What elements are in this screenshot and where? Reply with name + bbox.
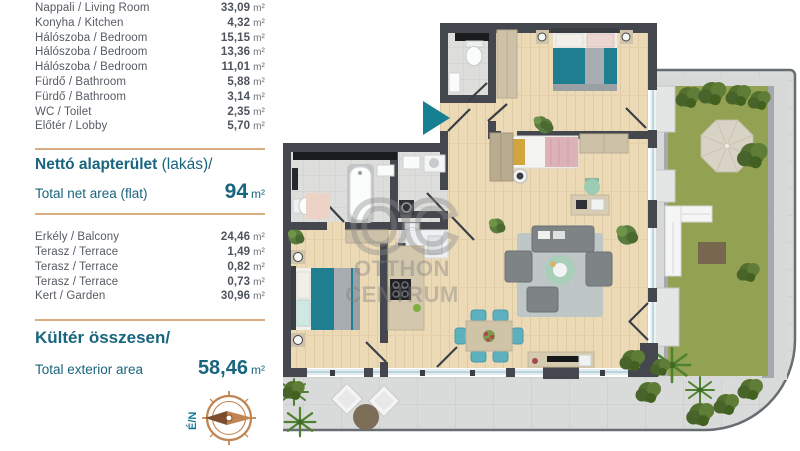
apartment: OC OTTHON CENTRUM: [283, 23, 658, 379]
divider: [35, 148, 265, 150]
exterior-total-row: Total exterior area 58,46m²: [35, 357, 265, 380]
table-row: Hálószoba / Bedroom13,36m²: [35, 46, 265, 61]
shower-room-window: [455, 33, 489, 41]
table-row: Terasz / Terrace0,73m²: [35, 276, 265, 291]
table-row: Erkély / Balcony24,46m²: [35, 231, 265, 246]
net-area-row: Total net area (flat) 94m²: [35, 180, 265, 204]
sink-icon: [449, 73, 460, 92]
garden-table: [698, 242, 726, 264]
balcony-table-icon: [353, 404, 379, 430]
pillow: [512, 139, 525, 165]
chair-icon: [584, 179, 600, 195]
sink-icon: [403, 156, 420, 169]
compass-label: É/N: [186, 412, 199, 430]
table-row: Hálószoba / Bedroom11,01m²: [35, 61, 265, 76]
floorplan-render: OC OTTHON CENTRUM: [283, 0, 800, 451]
table-row: Konyha / Kitchen4,32m²: [35, 17, 265, 32]
net-area-title: Nettó alapterület (lakás)/: [35, 156, 265, 174]
table-row: Fürdő / Bathroom3,14m²: [35, 91, 265, 106]
table-row: Terasz / Terrace0,82m²: [35, 261, 265, 276]
glass-facade: [291, 369, 648, 376]
toilet-icon: [466, 47, 482, 66]
svg-text:OTTHON: OTTHON: [354, 256, 450, 281]
bath-mat: [306, 193, 330, 219]
interior-room-list: Nappali / Living Room33,09m² Konyha / Ki…: [35, 2, 265, 135]
divider: [35, 213, 265, 215]
floorplan-sheet: Nappali / Living Room33,09m² Konyha / Ki…: [0, 0, 800, 451]
table-row: Nappali / Living Room33,09m²: [35, 2, 265, 17]
exterior-room-list: Erkély / Balcony24,46m² Terasz / Terrace…: [35, 231, 265, 305]
table-row: Kert / Garden30,96m²: [35, 290, 265, 305]
hallway: [490, 133, 513, 181]
sink-icon: [377, 165, 394, 176]
table-row: Hálószoba / Bedroom15,15m²: [35, 32, 265, 47]
tv-icon: [547, 356, 581, 362]
table-row: Terasz / Terrace1,49m²: [35, 246, 265, 261]
svg-text:CENTRUM: CENTRUM: [345, 282, 459, 307]
compass-icon: É/N: [183, 386, 263, 448]
divider: [35, 319, 265, 321]
table-row: Előtér / Lobby5,70m²: [35, 120, 265, 135]
table-row: Fürdő / Bathroom5,88m²: [35, 76, 265, 91]
table-row: WC / Toilet2,35m²: [35, 106, 265, 121]
exterior-total-title: Kültér összesen/: [35, 328, 265, 348]
area-table-panel: Nappali / Living Room33,09m² Konyha / Ki…: [35, 2, 265, 380]
watermark: OC OTTHON CENTRUM: [345, 185, 459, 307]
bathroom-window: [293, 152, 397, 160]
